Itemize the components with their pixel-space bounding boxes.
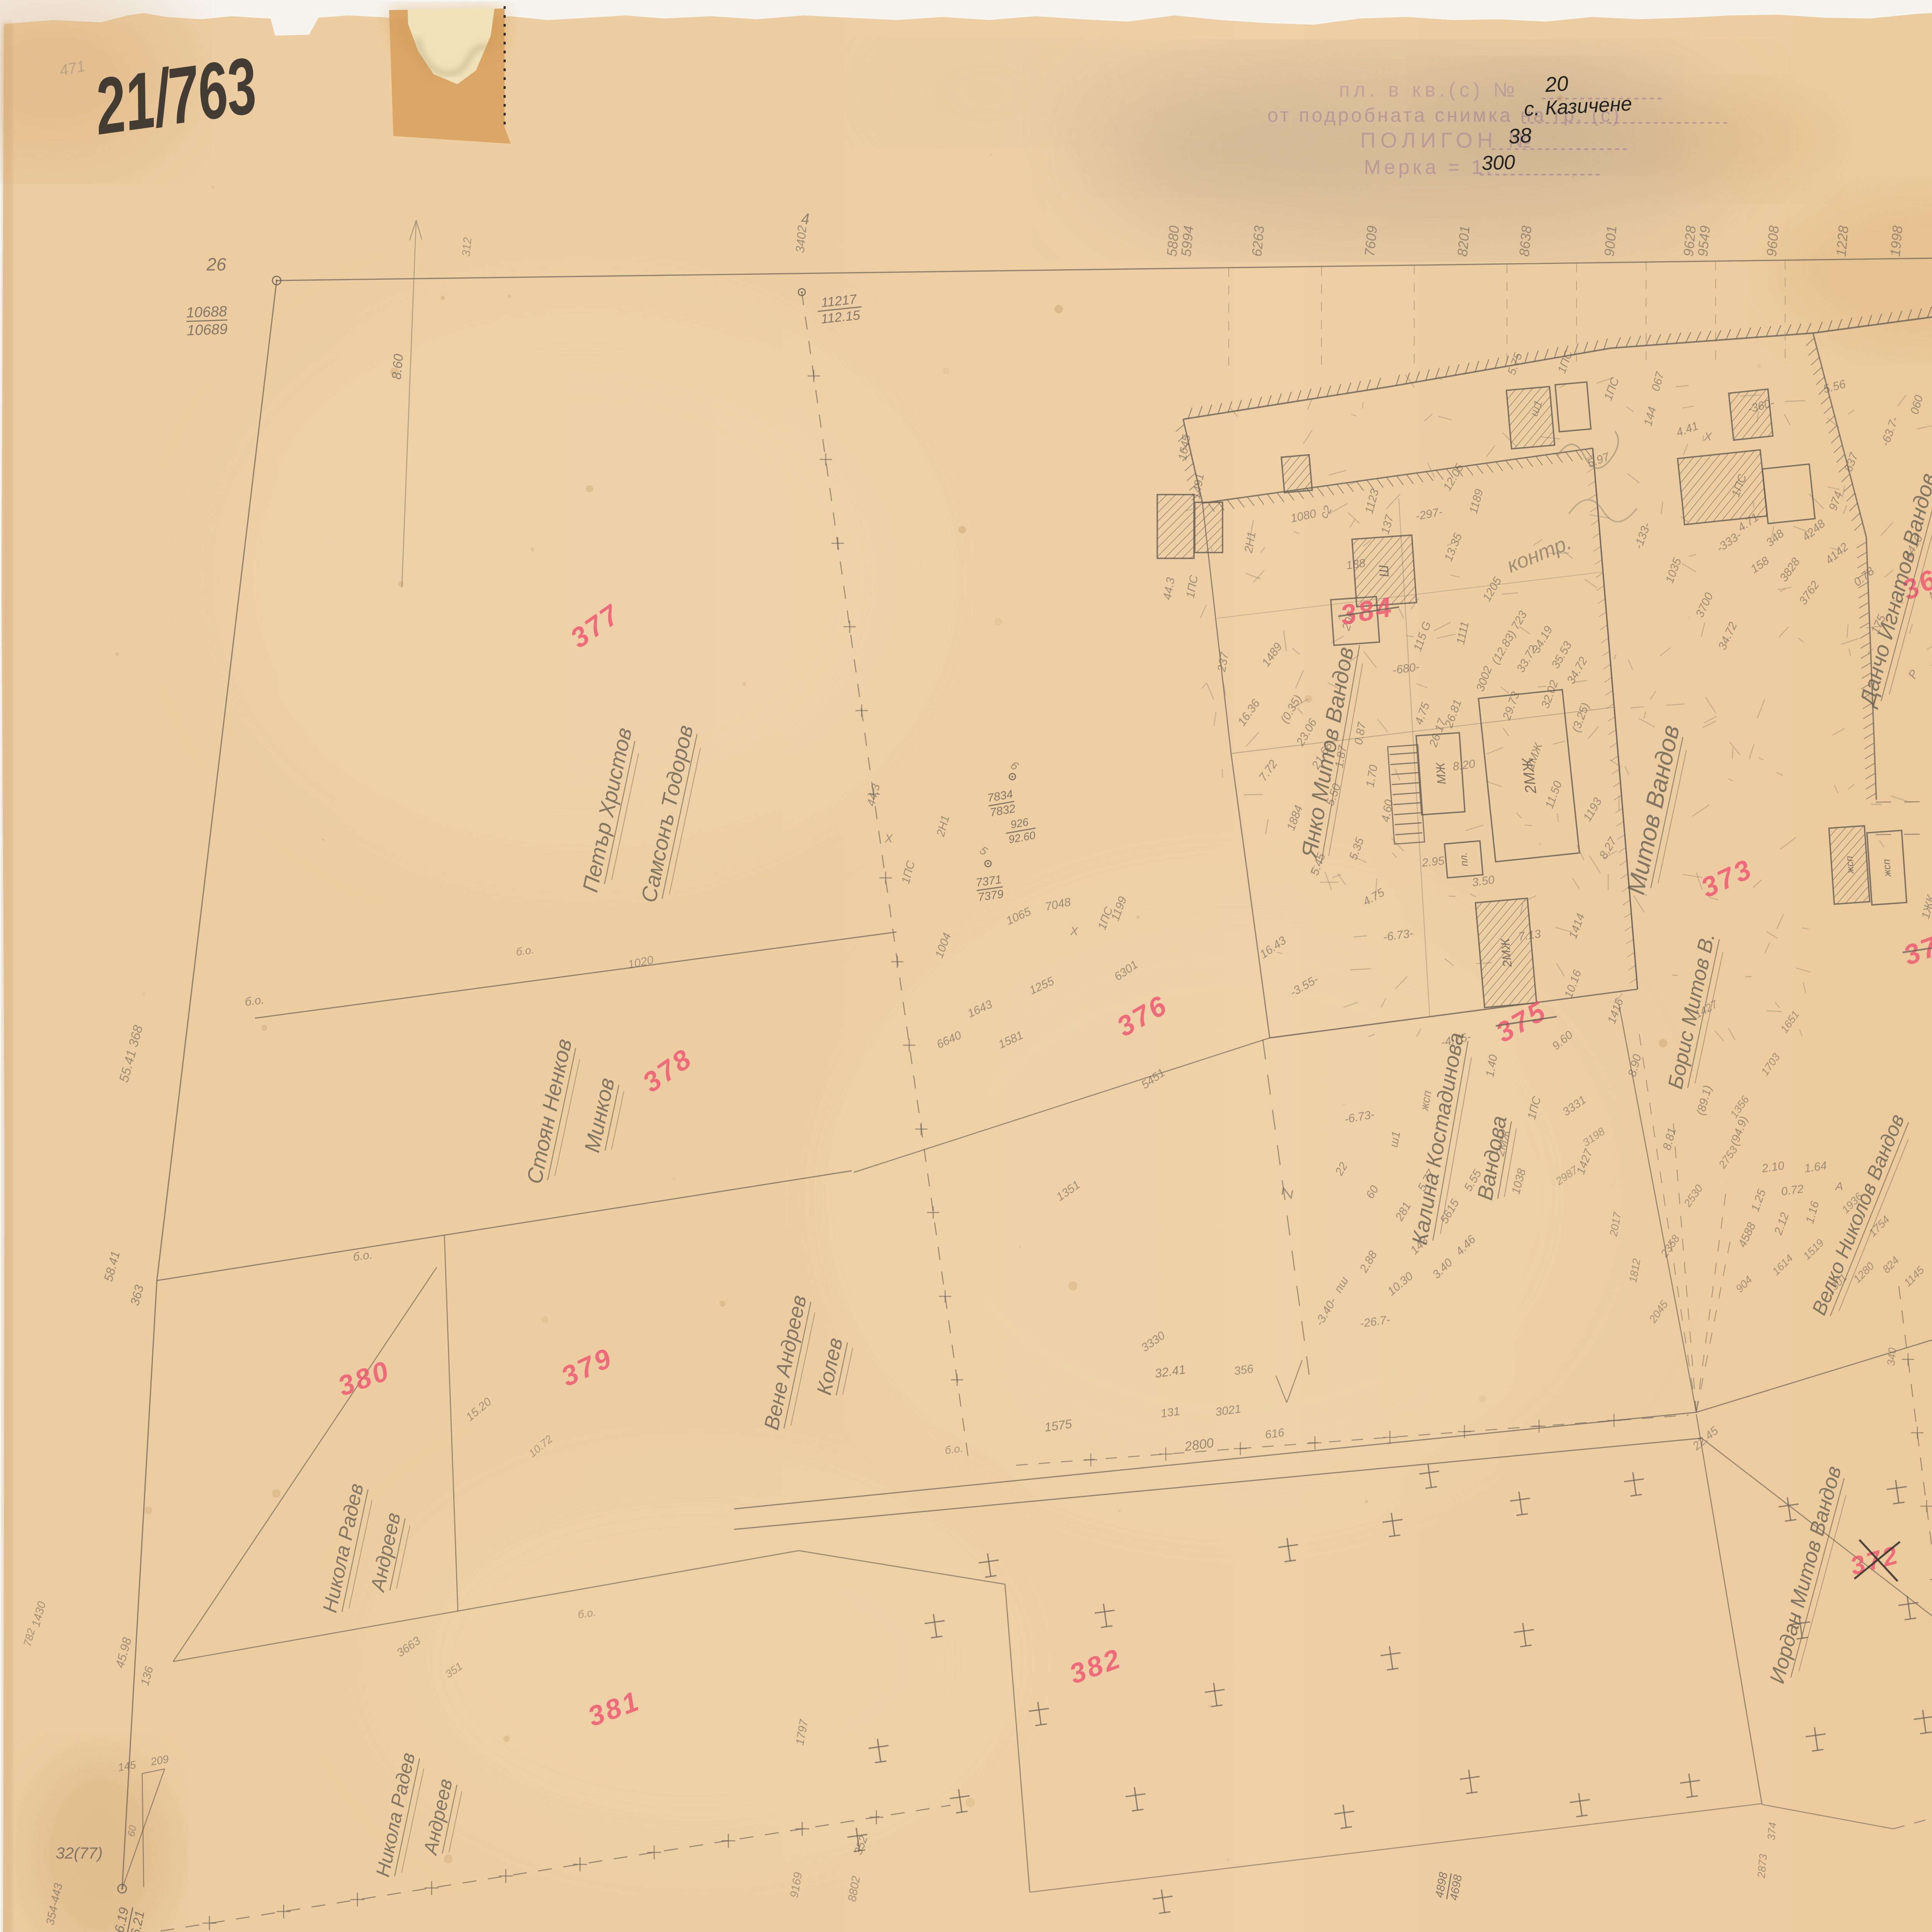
svg-text:3402: 3402 — [793, 225, 809, 253]
svg-text:9001: 9001 — [1601, 225, 1620, 257]
svg-text:жсп: жсп — [1880, 859, 1893, 877]
svg-text:1998: 1998 — [1887, 225, 1906, 257]
svg-text:60: 60 — [125, 1824, 139, 1837]
svg-text:8201: 8201 — [1454, 225, 1473, 257]
svg-text:8.60: 8.60 — [389, 353, 406, 380]
svg-text:X: X — [1070, 925, 1078, 938]
svg-text:374: 374 — [1765, 1822, 1779, 1841]
svg-text:6263: 6263 — [1249, 225, 1267, 257]
svg-text:9608: 9608 — [1764, 225, 1782, 257]
svg-text:2.95: 2.95 — [1421, 854, 1445, 869]
svg-text:188: 188 — [1345, 557, 1366, 572]
svg-text:10688: 10688 — [186, 303, 227, 321]
svg-text:7609: 7609 — [1362, 225, 1380, 257]
svg-text:б.о.: б.о. — [352, 1248, 373, 1264]
svg-text:пл. в кв.(с) №: пл. в кв.(с) № — [1339, 79, 1519, 101]
svg-text:4: 4 — [801, 211, 810, 228]
svg-text:1228: 1228 — [1833, 225, 1852, 257]
svg-text:б.о.: б.о. — [577, 1606, 597, 1621]
svg-text:X: X — [884, 832, 893, 845]
svg-text:616: 616 — [1264, 1426, 1285, 1442]
svg-text:МЖ: МЖ — [1433, 762, 1449, 785]
svg-text:2МЖ: 2МЖ — [1498, 937, 1515, 968]
svg-text:б.о.: б.о. — [944, 1442, 964, 1456]
svg-text:32(77): 32(77) — [56, 1844, 102, 1862]
svg-text:340: 340 — [1885, 1347, 1898, 1366]
svg-text:26: 26 — [206, 254, 226, 274]
svg-text:300: 300 — [1481, 151, 1515, 175]
svg-text:X: X — [1704, 430, 1712, 443]
svg-text:Мерка = 1:: Мерка = 1: — [1364, 156, 1494, 179]
svg-text:б.о.: б.о. — [244, 993, 265, 1009]
svg-text:9549: 9549 — [1695, 225, 1713, 257]
svg-text:356: 356 — [1233, 1362, 1254, 1378]
svg-text:20: 20 — [1544, 72, 1569, 97]
svg-text:8638: 8638 — [1516, 225, 1535, 257]
svg-text:б.о.: б.о. — [515, 944, 535, 958]
svg-text:312: 312 — [460, 236, 474, 257]
svg-text:10689: 10689 — [187, 321, 228, 339]
svg-text:38: 38 — [1508, 124, 1532, 148]
svg-text:2873: 2873 — [1755, 1853, 1769, 1879]
svg-text:131: 131 — [1160, 1405, 1181, 1420]
svg-text:Ш: Ш — [1376, 564, 1392, 578]
svg-text:жсп: жсп — [1843, 855, 1856, 874]
svg-text:пл.: пл. — [1457, 852, 1470, 867]
svg-text:5994: 5994 — [1178, 225, 1197, 257]
svg-text:A: A — [1835, 1180, 1843, 1193]
